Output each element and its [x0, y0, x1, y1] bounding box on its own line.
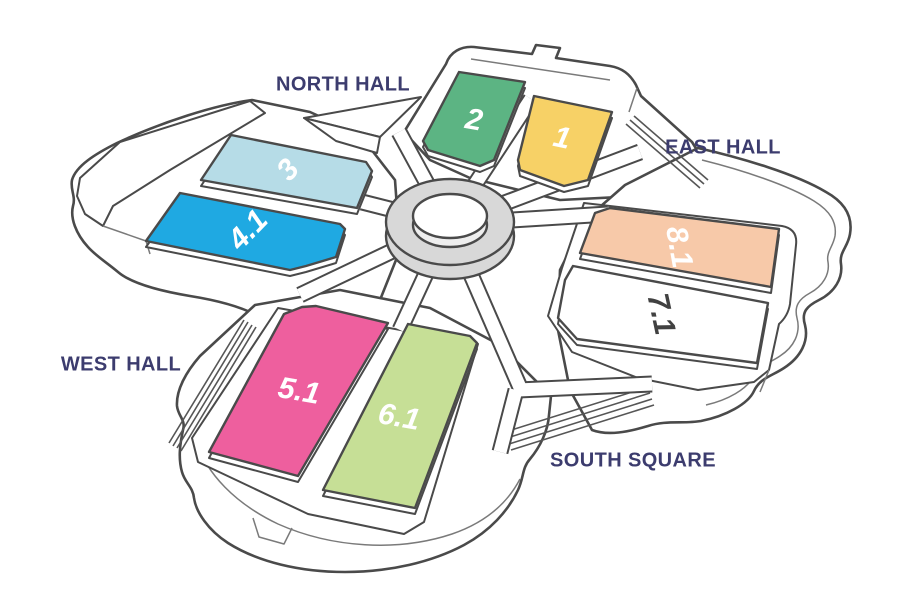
- hub-ring-hole: [413, 194, 487, 238]
- label-east-hall: EAST HALL: [665, 137, 781, 160]
- venue-map: 2134.15.16.18.17.1 NORTH HALL EAST HALL …: [0, 0, 900, 600]
- label-west-hall: WEST HALL: [61, 354, 181, 377]
- label-north-hall: NORTH HALL: [276, 74, 410, 97]
- label-south-square: SOUTH SQUARE: [550, 450, 716, 473]
- venue-map-canvas: 2134.15.16.18.17.1: [0, 0, 900, 600]
- central-hub-ring: [386, 179, 514, 279]
